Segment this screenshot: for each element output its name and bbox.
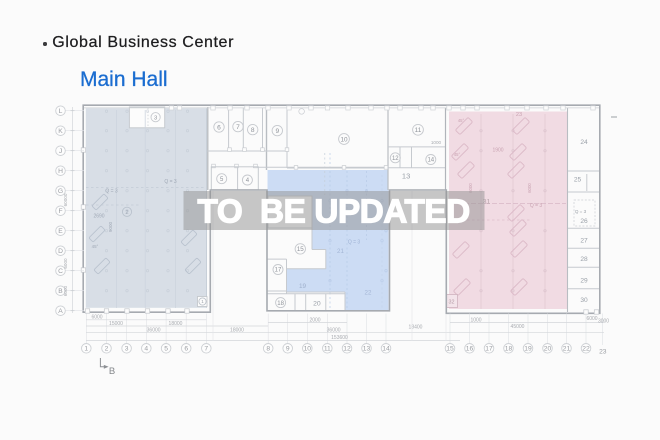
svg-text:4: 4 — [144, 346, 148, 353]
svg-text:20: 20 — [544, 346, 552, 353]
svg-text:Q = 3: Q = 3 — [164, 179, 177, 185]
svg-text:13: 13 — [363, 346, 371, 353]
svg-text:23: 23 — [516, 112, 522, 118]
svg-text:1: 1 — [201, 299, 204, 304]
svg-text:A: A — [58, 308, 63, 315]
svg-text:21: 21 — [337, 248, 344, 255]
svg-text:6000: 6000 — [63, 285, 68, 296]
svg-text:K: K — [58, 128, 63, 135]
svg-text:14: 14 — [382, 346, 390, 353]
svg-text:32: 32 — [449, 300, 455, 306]
svg-text:2690: 2690 — [93, 214, 104, 220]
svg-text:45°: 45° — [92, 244, 99, 249]
svg-text:45°: 45° — [454, 152, 461, 157]
svg-text:2: 2 — [105, 346, 109, 353]
svg-text:J: J — [59, 148, 62, 155]
svg-text:6000: 6000 — [527, 183, 532, 193]
svg-text:45°: 45° — [458, 118, 465, 123]
svg-text:18: 18 — [277, 301, 284, 307]
svg-text:26: 26 — [580, 218, 588, 225]
svg-text:1000: 1000 — [470, 318, 481, 324]
svg-text:9000: 9000 — [108, 221, 113, 232]
svg-text:24: 24 — [580, 139, 588, 146]
svg-text:14: 14 — [427, 158, 434, 164]
svg-text:19: 19 — [524, 346, 532, 353]
svg-text:18400: 18400 — [409, 325, 423, 331]
svg-text:20: 20 — [313, 301, 321, 308]
svg-text:Q = 3: Q = 3 — [530, 203, 543, 209]
svg-text:H: H — [58, 168, 63, 175]
svg-text:1000: 1000 — [431, 140, 442, 145]
svg-text:6: 6 — [184, 346, 188, 353]
svg-text:45000: 45000 — [511, 324, 525, 330]
svg-text:8: 8 — [251, 127, 255, 134]
svg-text:11: 11 — [415, 127, 422, 134]
svg-text:15: 15 — [297, 246, 304, 253]
svg-text:1900: 1900 — [492, 148, 503, 154]
svg-text:17: 17 — [485, 346, 493, 353]
svg-text:6: 6 — [217, 124, 221, 131]
svg-text:60000: 60000 — [63, 193, 68, 206]
svg-text:28: 28 — [580, 256, 588, 263]
svg-text:7: 7 — [236, 124, 240, 131]
svg-text:12: 12 — [392, 156, 399, 162]
svg-text:L: L — [59, 108, 63, 115]
svg-text:4: 4 — [246, 178, 250, 184]
svg-text:11: 11 — [324, 346, 331, 353]
svg-text:13: 13 — [402, 172, 410, 181]
svg-text:25: 25 — [574, 176, 582, 183]
svg-text:B: B — [109, 366, 115, 377]
svg-text:3000: 3000 — [598, 319, 609, 325]
svg-text:17: 17 — [275, 268, 282, 274]
svg-text:21: 21 — [563, 346, 571, 353]
svg-text:15000: 15000 — [109, 321, 123, 327]
svg-text:10: 10 — [304, 346, 312, 353]
svg-text:22: 22 — [582, 346, 590, 353]
svg-text:23: 23 — [599, 349, 607, 356]
svg-text:19: 19 — [299, 283, 307, 290]
svg-text:18: 18 — [505, 346, 513, 353]
svg-text:8: 8 — [266, 346, 270, 353]
svg-text:TO BE UPDATED: TO BE UPDATED — [198, 193, 470, 230]
svg-text:29: 29 — [580, 278, 588, 285]
svg-text:18000: 18000 — [169, 321, 183, 327]
svg-text:36000: 36000 — [147, 327, 161, 333]
svg-text:2000: 2000 — [309, 318, 320, 324]
svg-text:9: 9 — [275, 128, 279, 135]
svg-text:27: 27 — [580, 237, 588, 244]
svg-text:5: 5 — [164, 346, 168, 353]
svg-text:153600: 153600 — [331, 335, 348, 341]
svg-text:3: 3 — [125, 346, 129, 353]
svg-text:5: 5 — [220, 177, 224, 183]
svg-text:12: 12 — [343, 346, 351, 353]
svg-text:Q = 3: Q = 3 — [575, 209, 587, 214]
svg-text:15: 15 — [446, 346, 454, 353]
svg-text:D: D — [58, 248, 63, 255]
svg-text:Q = 3: Q = 3 — [348, 240, 361, 246]
svg-text:18000: 18000 — [230, 327, 244, 333]
svg-text:6000: 6000 — [586, 316, 597, 322]
svg-text:7: 7 — [204, 346, 208, 353]
svg-text:10: 10 — [340, 136, 348, 143]
svg-text:6000: 6000 — [91, 315, 102, 321]
svg-text:30: 30 — [580, 297, 588, 304]
svg-text:22: 22 — [365, 290, 372, 297]
svg-text:1: 1 — [84, 346, 88, 353]
svg-text:36000: 36000 — [327, 327, 341, 333]
svg-text:3: 3 — [154, 115, 157, 121]
svg-text:F: F — [58, 208, 62, 215]
svg-text:E: E — [58, 228, 63, 235]
svg-text:6000: 6000 — [63, 258, 68, 269]
svg-text:16: 16 — [466, 346, 474, 353]
svg-text:9: 9 — [286, 346, 290, 353]
